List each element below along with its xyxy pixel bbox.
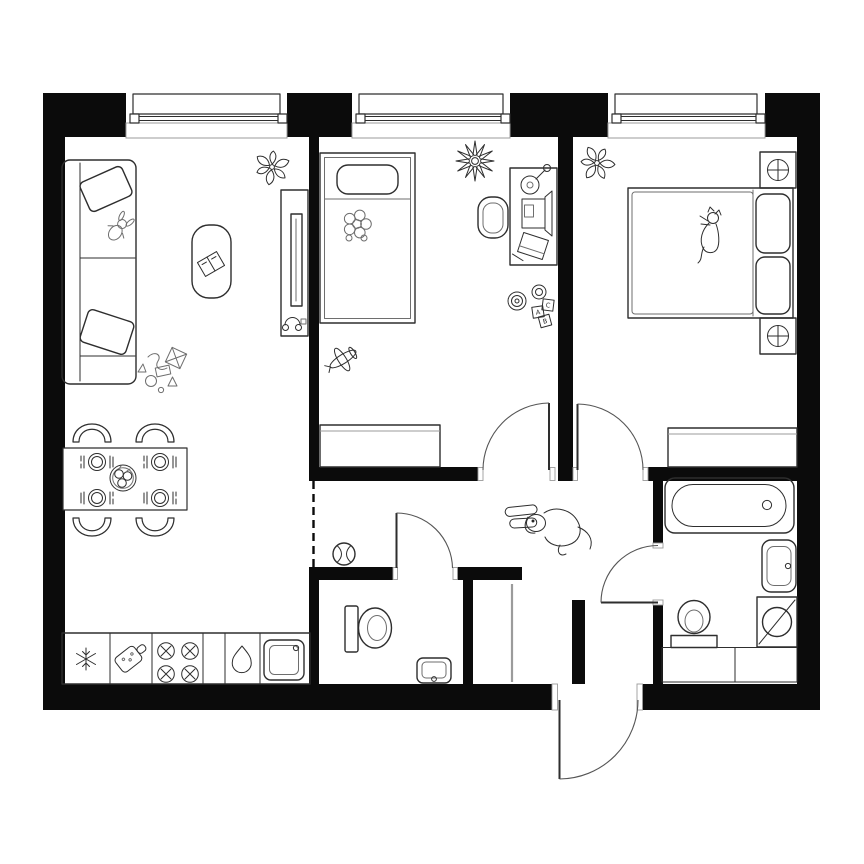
room-living-kitchen (62, 151, 310, 684)
block-letter-c: C (545, 301, 551, 310)
cutting-board-icon (113, 639, 150, 674)
wall-bottom-left (43, 684, 552, 710)
room-kids-bedroom: A C B (320, 141, 557, 467)
door-master-room (578, 404, 644, 470)
cat-icon (698, 207, 721, 263)
chair-3 (73, 518, 111, 536)
window-master (608, 94, 765, 138)
nightstand-top (760, 152, 796, 188)
door-bathroom (601, 546, 658, 603)
coffee-table (192, 225, 231, 298)
chair-4 (136, 518, 174, 536)
wc-washbasin (417, 658, 451, 683)
sofa-pillow-1 (78, 165, 133, 213)
bathtub (665, 478, 794, 533)
bathroom-toilet (671, 601, 717, 648)
desk-chair (478, 197, 508, 238)
plant-icon-master (574, 141, 620, 187)
wall-top-seg3 (510, 93, 608, 137)
wall-top-seg4 (765, 93, 820, 137)
block-letter-a: A (535, 308, 541, 317)
wall-top-seg1 (43, 93, 126, 137)
stove-burners (158, 643, 199, 683)
kitchen-counter (62, 633, 310, 684)
wall-entry-spur (572, 600, 585, 684)
exterior-walls (43, 93, 820, 710)
room-hallway (333, 504, 591, 565)
window-living (126, 94, 287, 138)
wall-living-kids (309, 137, 319, 467)
dog-icon (505, 504, 592, 554)
plant-icon-living (255, 151, 290, 186)
kitchen-sink (264, 640, 304, 680)
headphones-icon (283, 318, 307, 331)
tv-console (281, 190, 308, 336)
washbasin (762, 540, 796, 592)
room-wc (345, 606, 451, 683)
wall-bath-left-upper (653, 481, 663, 543)
book-icon (197, 252, 224, 277)
master-pillow-1 (756, 194, 790, 253)
door-wc (397, 513, 453, 568)
paper-sheet (512, 231, 549, 266)
wall-hall-closet (457, 567, 522, 580)
wall-bottom-right (642, 684, 820, 710)
star-plant-icon (456, 141, 494, 181)
desk-area (478, 165, 557, 267)
kids-wardrobe (320, 425, 440, 467)
wall-wc-closet (463, 580, 473, 684)
interior-walls (309, 137, 797, 684)
monitor-icon (522, 191, 552, 236)
sofa-pillow-2 (79, 308, 135, 355)
master-bed (628, 188, 793, 318)
lamp-icon-top (768, 160, 789, 181)
door-kids-room (483, 403, 549, 470)
floor-plan-canvas: A C B (0, 0, 864, 864)
bathroom-cabinets (662, 648, 797, 683)
block-letter-b: B (542, 317, 548, 326)
wc-toilet (345, 606, 392, 652)
joystick-icon (521, 165, 551, 195)
room-bathroom (662, 478, 797, 682)
toy-bunny (103, 209, 137, 245)
wall-kids-master (558, 137, 573, 481)
letter-blocks: A C B (532, 299, 554, 328)
chair-2 (136, 424, 174, 442)
kids-pillow (337, 165, 398, 194)
wall-top-seg2 (287, 93, 352, 137)
master-wardrobe (668, 428, 797, 467)
lamp-icon-bottom (768, 326, 789, 347)
wall-hall-wc-left (309, 567, 393, 580)
chair-1 (73, 424, 111, 442)
ball-icon (333, 543, 355, 565)
sofa (62, 160, 137, 384)
room-master-bedroom (574, 141, 797, 467)
wall-kids-hall (309, 467, 478, 481)
wall-right (797, 93, 820, 710)
washing-machine (757, 597, 797, 647)
nightstand-bottom (760, 318, 796, 354)
plush-flower (344, 210, 371, 241)
fridge-snowflake-icon (77, 648, 96, 670)
door-entrance (560, 700, 639, 779)
door-jambs (393, 468, 663, 711)
kids-bed (320, 153, 415, 323)
master-pillow-2 (756, 257, 790, 314)
water-drop-icon (232, 646, 251, 673)
floor-plan-drawing: A C B (0, 0, 864, 864)
dining-set (63, 424, 187, 536)
toy-pile (138, 347, 187, 392)
window-kids (352, 94, 510, 138)
toy-plane-icon (320, 340, 363, 380)
